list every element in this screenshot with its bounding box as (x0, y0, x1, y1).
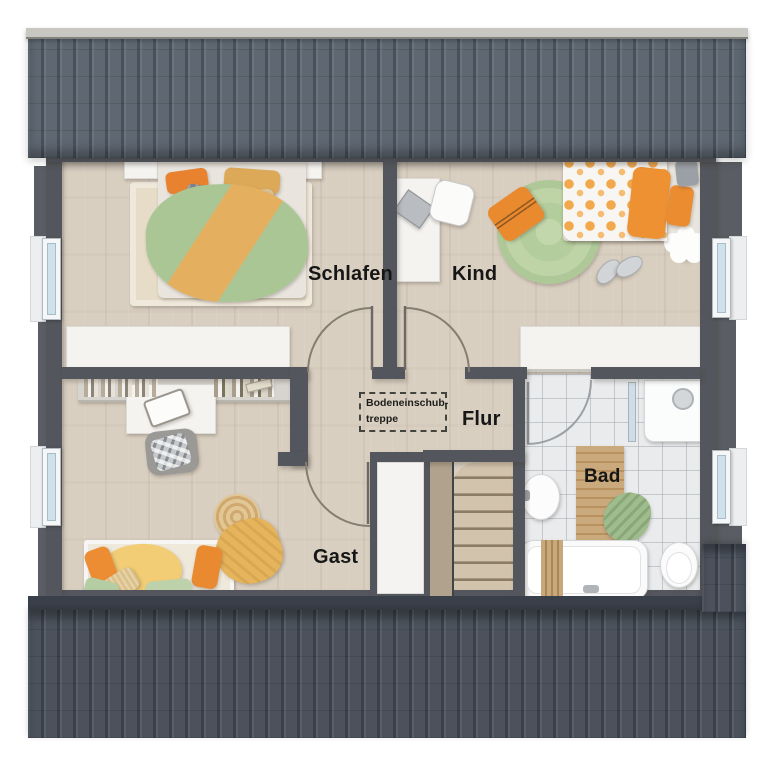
window-sill (729, 236, 747, 320)
child-blanket (626, 166, 671, 240)
wall-door-stub (372, 367, 405, 379)
hand-shower (583, 585, 599, 593)
stair-stringer (430, 452, 454, 598)
room-label-bad: Bad (584, 466, 621, 488)
wall-hall-left (62, 367, 308, 379)
room-label-gast: Gast (313, 546, 358, 569)
wall-hall-right-b (591, 367, 700, 379)
room-label-flur: Flur (462, 408, 501, 431)
wardrobe (66, 326, 290, 372)
wardrobe (520, 326, 708, 372)
shower (644, 380, 704, 442)
roof-bottom (28, 610, 746, 738)
window-schlafen (42, 238, 61, 320)
window-glass (717, 455, 726, 519)
tall-cabinet (377, 462, 424, 594)
books (84, 379, 158, 397)
attic-hatch-line2: treppe (366, 413, 398, 425)
window-gast (42, 448, 61, 526)
attic-hatch-line1: Bodeneinschub- (366, 397, 448, 409)
room-label-kind: Kind (452, 263, 497, 286)
attic-hatch-annotation: Bodeneinschub- treppe (359, 392, 447, 432)
staircase (452, 462, 513, 590)
wall-hall-right-a (465, 367, 527, 379)
window-glass (47, 243, 56, 315)
window-glass (717, 243, 726, 313)
exterior-wall-left (46, 157, 62, 598)
window-bad (712, 450, 731, 524)
window-sill (729, 448, 747, 526)
roof-ridge-cap (26, 28, 748, 39)
shower-glass (628, 382, 636, 442)
roof-bottom-step (702, 544, 746, 612)
wall-stairs-top (423, 450, 525, 462)
wall-stairs-bad (513, 379, 525, 598)
pillow (675, 159, 700, 187)
toilet-seat (666, 552, 692, 584)
window-kind (712, 238, 731, 318)
shower-head (672, 388, 694, 410)
gable-wall-segment (712, 162, 742, 238)
floor-plan: Schlafen Kind Flur Gast Bad Bodeneinschu… (0, 0, 775, 763)
wall-gast-door-stub (278, 452, 308, 466)
gable-wall-segment (714, 315, 736, 450)
exterior-wall-right (700, 157, 716, 598)
room-label-schlafen: Schlafen (308, 263, 393, 286)
window-glass (47, 453, 56, 521)
bath-caddy (541, 540, 563, 598)
roof-top (28, 36, 746, 158)
cloud-side-table (678, 238, 694, 254)
